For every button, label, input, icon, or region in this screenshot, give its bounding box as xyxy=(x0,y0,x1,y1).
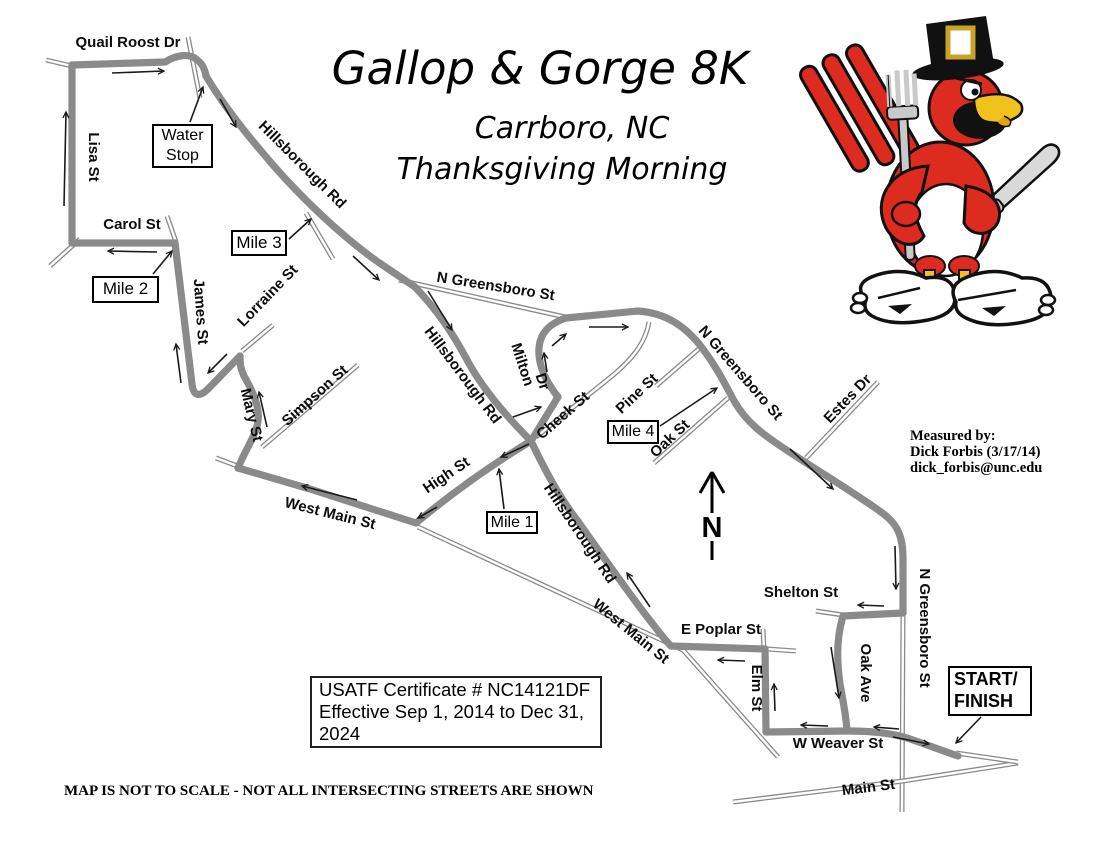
street-label-oak-ave: Oak Ave xyxy=(857,644,874,703)
event-subtitle: Thanksgiving Morning xyxy=(262,153,862,186)
pointer-mile-4 xyxy=(660,388,717,426)
arrow-poplar-west xyxy=(718,660,745,661)
north-arrow-head-right xyxy=(712,472,724,493)
street-label-n-greensboro-st-vert: N Greensboro St xyxy=(916,568,933,687)
road-hillsborough-nw-stub-inner xyxy=(188,37,200,98)
marker-water-stop-text: Stop xyxy=(154,146,211,166)
event-title: Gallop & Gorge 8K xyxy=(240,44,840,94)
route-shelton-st xyxy=(843,613,903,616)
street-label-estes-dr: Estes Dr xyxy=(821,371,876,427)
marker-mile-2-text: Mile 2 xyxy=(94,279,157,300)
pointer-mile-1 xyxy=(499,469,504,509)
street-label-n-greensboro-st-west: N Greensboro St xyxy=(436,269,556,304)
sneaker-toe-right-1 xyxy=(1041,295,1055,305)
mascot-hat xyxy=(911,16,1005,85)
map-disclaimer: MAP IS NOT TO SCALE - NOT ALL INTERSECTI… xyxy=(64,783,593,800)
street-label-hillsborough-rd-lower: Hillsborough Rd xyxy=(540,480,619,586)
marker-mile-3: Mile 3 xyxy=(231,230,287,256)
mascot-beak xyxy=(974,94,1022,123)
course-map: N Quail Roost DrLisa StCarol StJames StL… xyxy=(0,0,1101,851)
event-city: Carrboro, NC xyxy=(322,112,822,145)
street-label-lorraine-st: Lorraine St xyxy=(234,261,301,330)
sneaker-toe-left-2 xyxy=(851,303,865,313)
hat-buckle xyxy=(948,28,973,57)
road-james-north-stub-inner xyxy=(167,216,176,242)
street-label-carol-st: Carol St xyxy=(103,216,161,233)
pointer-start-finish xyxy=(956,717,981,743)
street-label-w-weaver-st: W Weaver St xyxy=(793,735,884,752)
street-label-high-st: High St xyxy=(420,454,473,497)
arrow-cheek-northeast xyxy=(513,407,541,417)
fork-tine-3 xyxy=(906,70,908,106)
arrow-carol-west xyxy=(108,251,157,252)
marker-start-finish-text: START/ xyxy=(954,669,1030,691)
north-label: N xyxy=(702,512,723,544)
credits-line-1: Measured by: xyxy=(910,428,1042,444)
marker-mile-2: Mile 2 xyxy=(92,276,159,303)
sneaker-toe-right-2 xyxy=(1039,305,1053,315)
marker-mile-1-text: Mile 1 xyxy=(488,513,536,533)
street-label-milton: Milton xyxy=(507,341,537,388)
pointer-mile-3 xyxy=(289,219,311,239)
street-label-pine-st: Pine St xyxy=(613,370,662,417)
arrow-elm-north xyxy=(774,684,775,711)
route-oak-ave xyxy=(838,616,847,731)
fork-base xyxy=(887,105,919,120)
route-e-poplar-st xyxy=(671,646,765,649)
fork-tine-4 xyxy=(914,73,916,105)
mascot-sneakers xyxy=(851,271,1055,324)
marker-mile-4-text: Mile 4 xyxy=(609,422,657,442)
arrow-james-north xyxy=(176,344,181,383)
marker-mile-4: Mile 4 xyxy=(607,420,659,444)
marker-start-finish-text: FINISH xyxy=(954,691,1030,713)
marker-mile-1: Mile 1 xyxy=(486,511,538,534)
mascot-pupil xyxy=(972,89,979,96)
route-quail-roost-dr xyxy=(72,56,206,76)
arrow-milton-northeast xyxy=(552,334,566,346)
arrow-lisa-north xyxy=(64,112,66,206)
street-label-shelton-st: Shelton St xyxy=(764,584,838,601)
certificate-line-1: USATF Certificate # NC14121DF xyxy=(319,679,593,701)
arrow-weaver-west-2 xyxy=(874,727,899,729)
street-label-elm-st: Elm St xyxy=(748,665,765,712)
street-label-hillsborough-rd-mid: Hillsborough Rd xyxy=(421,324,505,427)
usatf-certificate-box: USATF Certificate # NC14121DF Effective … xyxy=(310,676,602,748)
marker-start-finish: START/FINISH xyxy=(948,666,1032,716)
street-label-lisa-st: Lisa St xyxy=(85,132,102,181)
street-label-west-main-st: West Main St xyxy=(283,494,377,533)
fork-tine-2 xyxy=(897,70,899,106)
north-arrow: N xyxy=(700,472,724,560)
street-label-simpson-st: Simpson St xyxy=(279,362,352,430)
mascot-left-hand xyxy=(892,202,920,226)
street-label-james-st: James St xyxy=(190,278,212,345)
measured-by-credits: Measured by: Dick Forbis (3/17/14) dick_… xyxy=(910,428,1042,476)
credits-line-2: Dick Forbis (3/17/14) xyxy=(910,444,1042,460)
road-weaver-main-merge-inner xyxy=(956,753,1018,762)
arrow-weaver-west-1 xyxy=(801,725,828,726)
certificate-line-2: Effective Sep 1, 2014 to Dec 31, 2024 xyxy=(319,701,593,745)
road-pine-st-inner xyxy=(656,347,701,386)
street-label-cheek-st: Cheek St xyxy=(533,388,593,443)
arrow-shelton-west xyxy=(858,605,884,606)
sneaker-toe-left-1 xyxy=(853,293,867,303)
street-label-quail-roost-dr: Quail Roost Dr xyxy=(75,34,180,51)
arrow-n-greensboro-south xyxy=(895,546,896,589)
street-label-main-st: Main St xyxy=(841,776,896,799)
marker-mile-3-text: Mile 3 xyxy=(233,233,285,254)
pointer-mile-2 xyxy=(153,251,172,274)
sneaker-left xyxy=(861,271,956,322)
arrow-quail-roost-east xyxy=(112,71,164,73)
marker-water-stop-text: Water xyxy=(154,126,211,146)
street-label-e-poplar-st: E Poplar St xyxy=(681,621,761,638)
marker-water-stop: WaterStop xyxy=(152,124,213,168)
north-arrow-head-left xyxy=(700,472,712,493)
credits-line-3: dick_forbis@unc.edu xyxy=(910,460,1042,476)
